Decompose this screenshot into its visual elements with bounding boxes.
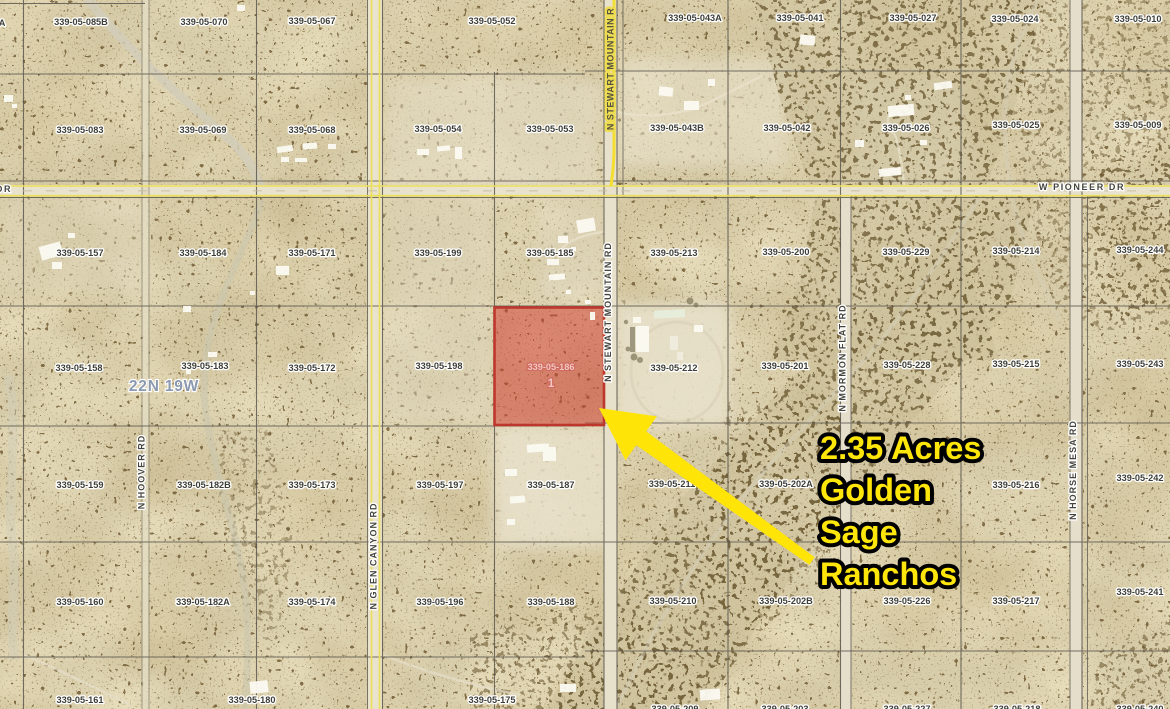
svg-text:339-05-188: 339-05-188 — [528, 597, 575, 607]
svg-text:339-05-241: 339-05-241 — [1117, 587, 1164, 597]
svg-text:339-05-202B: 339-05-202B — [759, 596, 813, 606]
svg-text:339-05-182B: 339-05-182B — [177, 480, 231, 490]
svg-text:339-05-067: 339-05-067 — [289, 16, 336, 26]
svg-text:339-05-043B: 339-05-043B — [650, 123, 704, 133]
svg-text:339-05-172: 339-05-172 — [289, 363, 336, 373]
svg-text:339-05-180: 339-05-180 — [229, 695, 276, 705]
svg-text:2.35 Acres: 2.35 Acres — [820, 430, 981, 466]
svg-text:339-05-026: 339-05-026 — [883, 123, 930, 133]
svg-text:339-05-175: 339-05-175 — [469, 695, 516, 705]
svg-text:339-05-083: 339-05-083 — [57, 125, 104, 135]
svg-text:N STEWART MOUNTAIN RD: N STEWART MOUNTAIN RD — [603, 242, 613, 382]
svg-text:Sage: Sage — [820, 514, 898, 550]
svg-text:339-05-229: 339-05-229 — [883, 247, 930, 257]
svg-text:339-05-159: 339-05-159 — [57, 480, 104, 490]
svg-text:Golden: Golden — [820, 472, 932, 508]
svg-text:339-05-244: 339-05-244 — [1117, 245, 1165, 255]
svg-text:339-05-027: 339-05-027 — [890, 13, 937, 23]
svg-text:22N 19W: 22N 19W — [129, 378, 199, 395]
svg-text:N GLEN CANYON RD: N GLEN CANYON RD — [369, 502, 379, 609]
svg-text:339-05-186: 339-05-186 — [528, 362, 575, 372]
svg-text:339-05-200: 339-05-200 — [763, 247, 810, 257]
svg-text:339-05-158: 339-05-158 — [56, 363, 103, 373]
svg-text:339-05-213: 339-05-213 — [651, 248, 698, 258]
svg-text:339-05-161: 339-05-161 — [57, 695, 104, 705]
svg-text:339-05-068: 339-05-068 — [289, 125, 336, 135]
svg-text:339-05-025: 339-05-025 — [993, 120, 1040, 130]
svg-text:339-05-187: 339-05-187 — [528, 480, 575, 490]
svg-text:339-05-054: 339-05-054 — [415, 124, 463, 134]
svg-text:339-05-085B: 339-05-085B — [54, 17, 108, 27]
svg-text:339-05-243: 339-05-243 — [1117, 359, 1164, 369]
svg-text:339-05-201: 339-05-201 — [762, 361, 809, 371]
svg-text:339-05-184: 339-05-184 — [180, 248, 228, 258]
svg-text:N HORSE MESA RD: N HORSE MESA RD — [1068, 420, 1078, 520]
svg-text:339-05-174: 339-05-174 — [289, 597, 337, 607]
svg-text:339-05-215: 339-05-215 — [993, 359, 1040, 369]
svg-text:339-05-203: 339-05-203 — [762, 704, 809, 709]
svg-text:1: 1 — [548, 376, 555, 390]
svg-text:339-05-157: 339-05-157 — [57, 248, 104, 258]
svg-text:339-05-043A: 339-05-043A — [668, 13, 722, 23]
svg-text:339-05-042: 339-05-042 — [764, 123, 811, 133]
svg-text:339-05-212: 339-05-212 — [651, 363, 698, 373]
svg-text:339-05-183: 339-05-183 — [182, 361, 229, 371]
svg-text:Ranchos: Ranchos — [820, 556, 957, 592]
svg-text:339-05-182A: 339-05-182A — [176, 597, 230, 607]
svg-text:339-05-024: 339-05-024 — [992, 14, 1040, 24]
svg-text:339-05-070: 339-05-070 — [181, 17, 228, 27]
svg-text:339-05-216: 339-05-216 — [993, 480, 1040, 490]
svg-text:DR: DR — [0, 184, 12, 194]
svg-text:339-05-214: 339-05-214 — [993, 246, 1041, 256]
svg-text:339-05-010: 339-05-010 — [1115, 14, 1162, 24]
svg-text:339-05-217: 339-05-217 — [993, 596, 1040, 606]
svg-text:339-05-173: 339-05-173 — [289, 480, 336, 490]
svg-text:339-05-227: 339-05-227 — [884, 704, 931, 709]
svg-text:339-05-209: 339-05-209 — [652, 704, 699, 709]
svg-text:N MORMON FLAT RD: N MORMON FLAT RD — [838, 304, 848, 411]
svg-text:N STEWART MOUNTAIN R: N STEWART MOUNTAIN R — [606, 8, 616, 130]
svg-text:339-05-069: 339-05-069 — [180, 125, 227, 135]
svg-text:339-05-009: 339-05-009 — [1115, 120, 1162, 130]
svg-text:N HOOVER RD: N HOOVER RD — [137, 435, 147, 510]
svg-text:339-05-202A: 339-05-202A — [759, 479, 813, 489]
svg-text:339-05-199: 339-05-199 — [415, 248, 462, 258]
svg-text:A: A — [0, 18, 6, 28]
svg-text:339-05-196: 339-05-196 — [417, 597, 464, 607]
svg-text:339-05-160: 339-05-160 — [57, 597, 104, 607]
svg-text:339-05-198: 339-05-198 — [416, 361, 463, 371]
svg-text:339-05-053: 339-05-053 — [527, 124, 574, 134]
svg-text:339-05-171: 339-05-171 — [289, 248, 336, 258]
svg-text:339-05-226: 339-05-226 — [884, 596, 931, 606]
svg-text:W PIONEER DR: W PIONEER DR — [1039, 182, 1125, 192]
svg-text:339-05-185: 339-05-185 — [527, 248, 574, 258]
svg-text:339-05-218: 339-05-218 — [994, 704, 1041, 709]
svg-text:339-05-197: 339-05-197 — [417, 480, 464, 490]
svg-text:339-05-052: 339-05-052 — [469, 16, 516, 26]
svg-text:339-05-041: 339-05-041 — [777, 13, 824, 23]
svg-text:339-05-242: 339-05-242 — [1117, 473, 1164, 483]
svg-text:339-05-228: 339-05-228 — [884, 360, 931, 370]
svg-text:339-05-210: 339-05-210 — [650, 596, 697, 606]
svg-text:339-05-240: 339-05-240 — [1117, 704, 1164, 709]
